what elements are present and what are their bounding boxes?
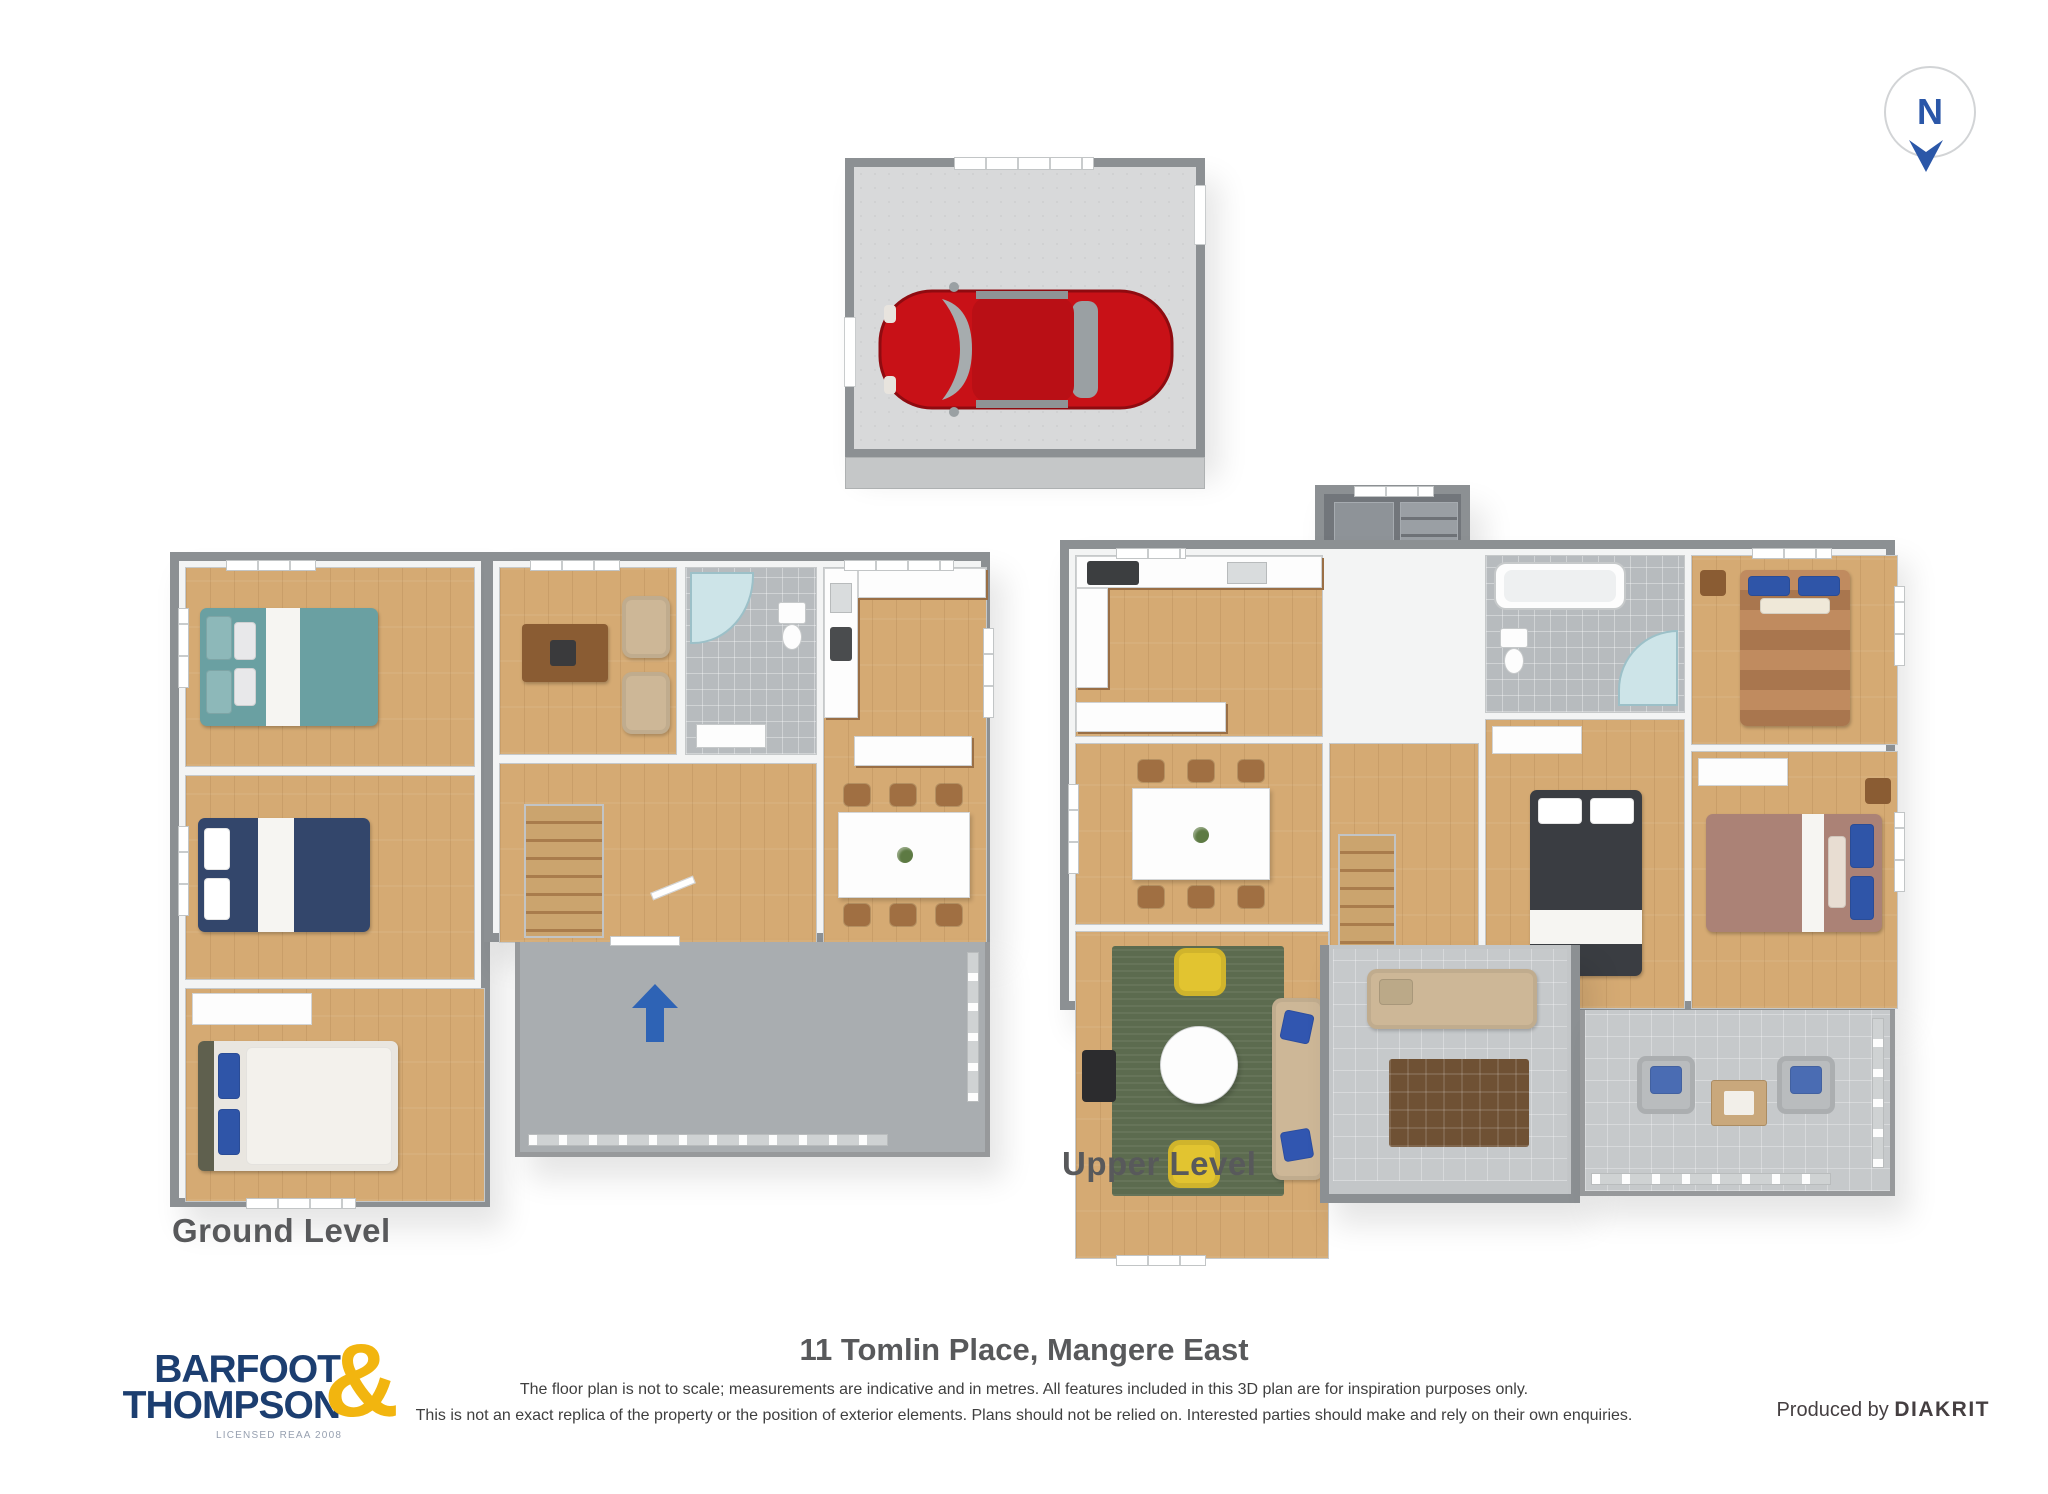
table-plant (1193, 827, 1209, 843)
sofa (1272, 998, 1324, 1180)
bathtub-basin (1504, 570, 1616, 602)
pillow (1650, 1066, 1682, 1094)
upper-level-label: Upper Level (1062, 1145, 1256, 1183)
duvet (246, 1047, 392, 1165)
produced-by: Produced by DIAKRIT (1776, 1398, 1990, 1422)
dining-chair (1188, 760, 1214, 782)
deck-railing (528, 1134, 888, 1146)
sofa (1367, 969, 1537, 1029)
balcony-railing (1591, 1173, 1831, 1185)
ground-bedroom-wing (170, 552, 490, 1207)
dining-table (1132, 788, 1270, 880)
deck-railing (967, 952, 979, 1102)
toilet-tank (778, 602, 806, 624)
pillow (1790, 1066, 1822, 1094)
pillow (1760, 598, 1830, 614)
fireplace-unit (1082, 1050, 1116, 1102)
ground-bedroom-3 (185, 988, 485, 1202)
ground-lounge (499, 567, 677, 755)
bed-runner (1530, 910, 1642, 944)
dining-chair (936, 904, 962, 926)
window (983, 628, 994, 718)
garage-side-door (844, 317, 856, 387)
dining-chair (890, 784, 916, 806)
upper-main-body (1060, 540, 1895, 1010)
window (246, 1198, 356, 1209)
address-title: 11 Tomlin Place, Mangere East (0, 1332, 2048, 1368)
garage-plan (845, 158, 1205, 458)
pillow (1748, 576, 1790, 596)
red-car (876, 277, 1176, 422)
window (844, 560, 954, 571)
kitchen-island (854, 736, 972, 766)
ground-bedroom-1-bed (200, 608, 378, 726)
kitchen-sink (1227, 562, 1267, 584)
pillow (1379, 979, 1413, 1005)
stove (1087, 561, 1139, 585)
kitchen-counter (1076, 556, 1322, 588)
ground-bedroom-1 (185, 567, 475, 767)
wardrobe (192, 993, 312, 1025)
bathtub (1494, 562, 1626, 610)
toilet-bowl (1504, 648, 1524, 674)
bed-runner (258, 818, 294, 932)
window (1894, 586, 1905, 666)
ground-hallway (499, 763, 817, 943)
ground-deck (515, 942, 990, 1157)
toilet-bowl (782, 624, 802, 650)
nightstand (1865, 778, 1891, 804)
floorplan-page: N (0, 0, 2048, 1494)
pillow (204, 878, 230, 920)
pillow (218, 1053, 240, 1099)
garage-internal-door (1194, 185, 1206, 245)
entry-door (610, 936, 680, 946)
upper-bedroom-3-bed (1706, 814, 1882, 932)
lounge-chair (1777, 1056, 1835, 1114)
pillow (1850, 824, 1874, 868)
window (1068, 784, 1079, 874)
pillow (206, 670, 232, 714)
door-leaf (650, 876, 696, 901)
pillow (206, 616, 232, 660)
upper-living-room (1075, 931, 1329, 1259)
dining-chair (936, 784, 962, 806)
staircase (524, 804, 604, 938)
dining-chair (1138, 886, 1164, 908)
table-decor (550, 640, 576, 666)
upper-dining (1075, 743, 1323, 925)
wardrobe (1698, 758, 1788, 786)
upper-bedroom-1 (1691, 555, 1898, 745)
window (1354, 486, 1434, 497)
garage-window (954, 157, 1094, 170)
yellow-armchair (1174, 948, 1226, 996)
upper-bedroom-3 (1691, 751, 1898, 1009)
upper-level-plan: Upper Level (1060, 485, 1905, 1210)
table-plant (897, 847, 913, 863)
coffee-table (1711, 1080, 1767, 1126)
disclaimer-line-1: The floor plan is not to scale; measurem… (0, 1381, 2048, 1399)
dining-chair (890, 904, 916, 926)
upper-sunroom (1580, 1010, 1895, 1196)
window (1894, 812, 1905, 892)
ground-bathroom (685, 567, 817, 755)
nightstand (1700, 570, 1726, 596)
produced-by-label: Produced by (1776, 1399, 1888, 1421)
table-decor (1724, 1091, 1754, 1115)
pillow (1538, 798, 1582, 824)
dining-chair (844, 784, 870, 806)
balcony-railing (1872, 1018, 1884, 1168)
stove (830, 627, 852, 661)
play-rug (1389, 1059, 1529, 1147)
lounge-chair (1637, 1056, 1695, 1114)
kitchen-island (1076, 702, 1226, 732)
round-coffee-table (1160, 1026, 1238, 1104)
pillow (234, 668, 256, 706)
window (226, 560, 316, 571)
pillow (204, 828, 230, 870)
pillow (1798, 576, 1840, 596)
compass-north-letter: N (1917, 91, 1943, 133)
upper-bedroom-1-bed (1740, 570, 1850, 726)
compass-south-arrow-icon (1906, 140, 1946, 172)
ground-bedroom-2 (185, 775, 475, 980)
vanity (696, 724, 766, 748)
kitchen-counter (858, 568, 986, 598)
shower (1618, 630, 1678, 706)
window (1116, 1255, 1206, 1266)
upper-family-room (1320, 945, 1580, 1203)
window (1116, 548, 1186, 559)
window (530, 560, 620, 571)
dining-chair (1188, 886, 1214, 908)
pillow (234, 622, 256, 660)
disclaimer-line-2: This is not an exact replica of the prop… (0, 1407, 2048, 1425)
dining-chair (1238, 886, 1264, 908)
window (1752, 548, 1832, 559)
bed-runner (1802, 814, 1824, 932)
ground-bedroom-2-bed (198, 818, 370, 932)
upper-kitchen (1075, 555, 1323, 737)
armchair (622, 672, 670, 734)
bed-runner (266, 608, 300, 726)
coffee-table (522, 624, 608, 682)
pillow (1828, 836, 1846, 908)
ground-kitchen-dining (823, 567, 987, 943)
dining-chair (1138, 760, 1164, 782)
armchair (622, 596, 670, 658)
kitchen-sink (830, 583, 852, 613)
headboard (198, 1041, 214, 1171)
window (178, 608, 189, 688)
ground-bedroom-3-bed (198, 1041, 398, 1171)
ground-level-label: Ground Level (172, 1212, 391, 1250)
pillow (1280, 1128, 1315, 1163)
pillow (1590, 798, 1634, 824)
pillow (218, 1109, 240, 1155)
entrance-arrow-icon (632, 984, 678, 1042)
shower (690, 572, 754, 644)
window (178, 826, 189, 916)
dining-chair (1238, 760, 1264, 782)
producer-name: DIAKRIT (1894, 1398, 1990, 1421)
family-room-floor (1333, 949, 1567, 1181)
logo-tagline: LICENSED REAA 2008 (216, 1430, 342, 1441)
ground-level-plan: Ground Level (170, 552, 990, 1207)
upper-bathroom (1485, 555, 1685, 713)
toilet-tank (1500, 628, 1528, 648)
pillow (1850, 876, 1874, 920)
wardrobe (1492, 726, 1582, 754)
dining-chair (844, 904, 870, 926)
kitchen-counter (824, 568, 858, 718)
ground-main-body (484, 552, 990, 942)
kitchen-counter (1076, 588, 1108, 688)
dining-table (838, 812, 970, 898)
pillow (1279, 1009, 1315, 1045)
